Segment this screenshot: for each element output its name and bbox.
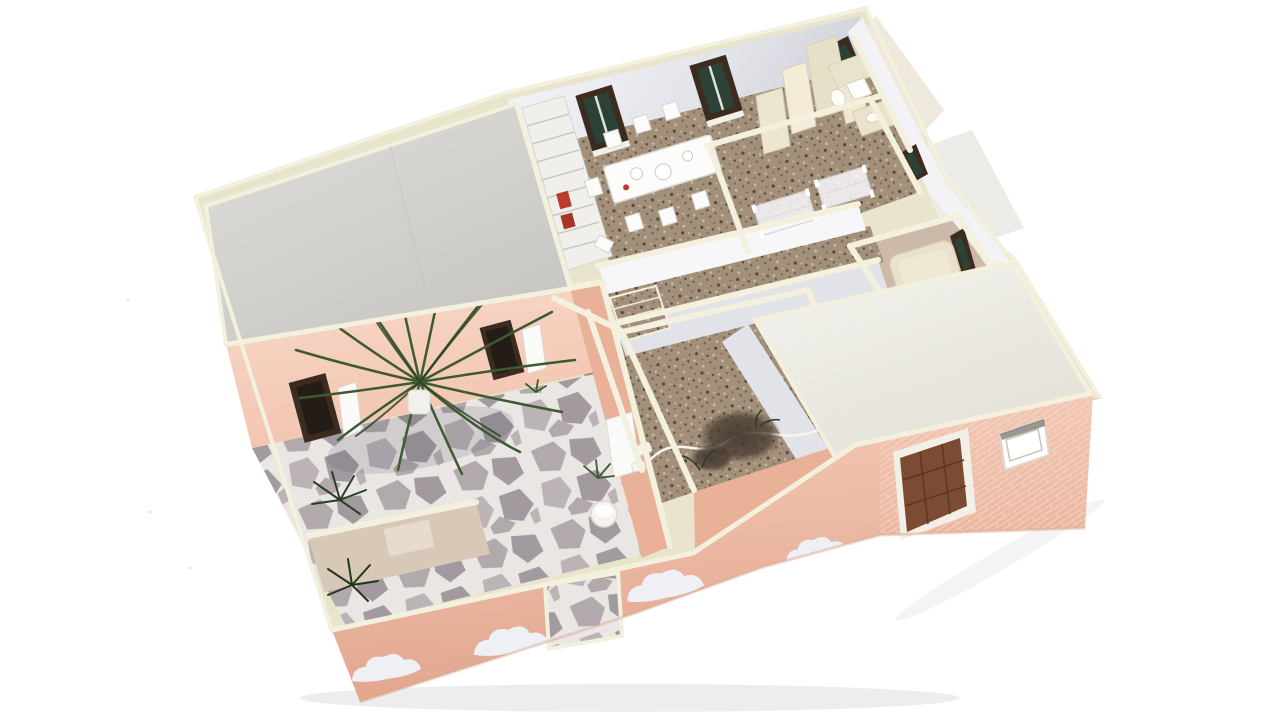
architectural-model-photo: Photograph of a miniature cardboard arch… (0, 0, 1280, 720)
photo-canvas: Photograph of a miniature cardboard arch… (0, 0, 1280, 720)
plant-pot (408, 390, 430, 414)
background-specks (127, 299, 192, 570)
